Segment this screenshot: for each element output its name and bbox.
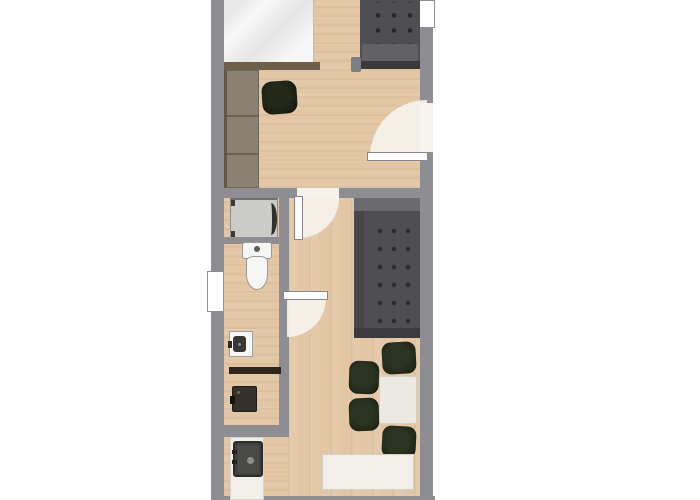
dining-chair-left-1[interactable]: [348, 360, 379, 394]
dining-chair-left-2[interactable]: [348, 397, 379, 431]
sofa-armrest-top: [354, 198, 420, 211]
sink-faucet: [228, 341, 232, 348]
sofa-tufting: [368, 216, 416, 326]
top-right-window[interactable]: [419, 0, 435, 28]
washer-door-seal: [265, 203, 277, 235]
sofa-armrest-bottom: [354, 328, 420, 338]
sofa-back: [354, 211, 364, 328]
bedroom-door-opening: [297, 188, 339, 198]
left-wall: [211, 0, 224, 500]
bed-footboard: [224, 62, 320, 70]
wardrobe-shelf-line: [227, 115, 258, 117]
side-table[interactable]: [351, 57, 361, 72]
wardrobe[interactable]: [224, 70, 259, 188]
toilet[interactable]: [246, 256, 268, 290]
bed[interactable]: [224, 0, 314, 63]
bedroom-door-leaf[interactable]: [294, 196, 303, 240]
dining-chair-top[interactable]: [381, 341, 417, 375]
kitchen-island[interactable]: [322, 454, 414, 490]
bathroom-door-leaf[interactable]: [283, 291, 328, 300]
sofa[interactable]: [354, 198, 420, 338]
left-window[interactable]: [207, 271, 224, 312]
sofa-tufting: [364, 2, 416, 44]
sofa-seat-cushion: [362, 44, 418, 61]
kitchen-sink-drain: [247, 457, 254, 464]
bedroom-divider-wall-right: [339, 188, 433, 198]
kitchen-faucet: [232, 450, 237, 454]
right-wall: [420, 0, 433, 500]
sofa-front-edge: [360, 61, 420, 69]
dining-table[interactable]: [379, 376, 417, 424]
shower-knob: [230, 396, 235, 404]
washing-machine[interactable]: [230, 198, 278, 238]
entry-door-leaf[interactable]: [367, 152, 428, 161]
sink-drain: [238, 343, 241, 346]
shower-head-dot: [237, 391, 240, 394]
kitchen-divider-wall: [224, 425, 289, 437]
washer-corner-mark: [231, 200, 235, 206]
shower-unit[interactable]: [232, 386, 257, 412]
kitchen-faucet: [232, 460, 237, 464]
bathroom-sink[interactable]: [229, 331, 253, 357]
loveseat-sofa[interactable]: [360, 0, 420, 69]
desk-chair[interactable]: [261, 80, 298, 115]
shower-partition: [229, 367, 281, 374]
washer-corner-mark: [231, 231, 235, 237]
floor-plan-canvas: [0, 0, 700, 500]
kitchen-sink[interactable]: [233, 441, 263, 477]
toilet-flush-button: [254, 246, 260, 252]
wardrobe-shelf-line: [227, 153, 258, 155]
